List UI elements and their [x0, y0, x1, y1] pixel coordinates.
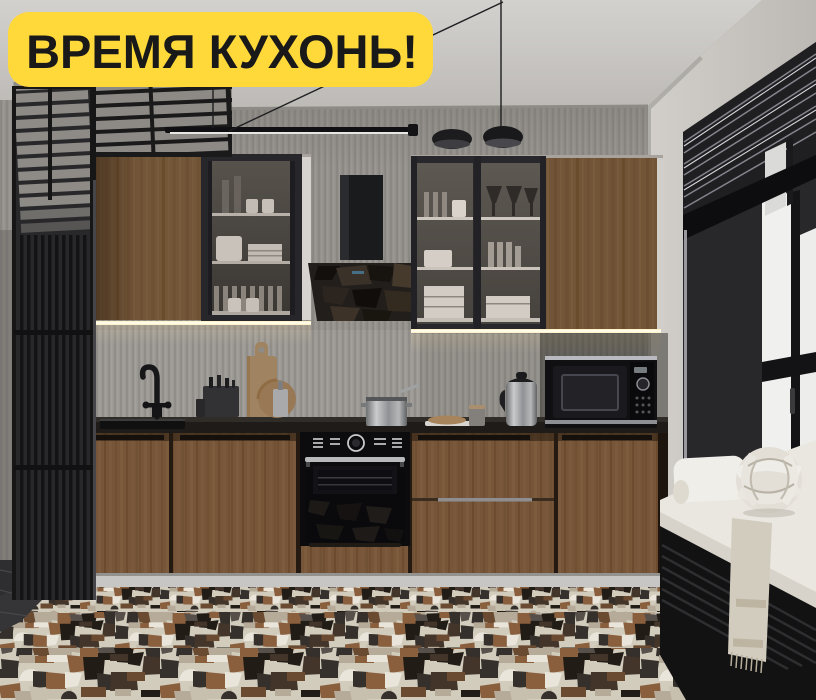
svg-text:ВРЕМЯ КУХОНЬ!: ВРЕМЯ КУХОНЬ! [26, 25, 418, 78]
